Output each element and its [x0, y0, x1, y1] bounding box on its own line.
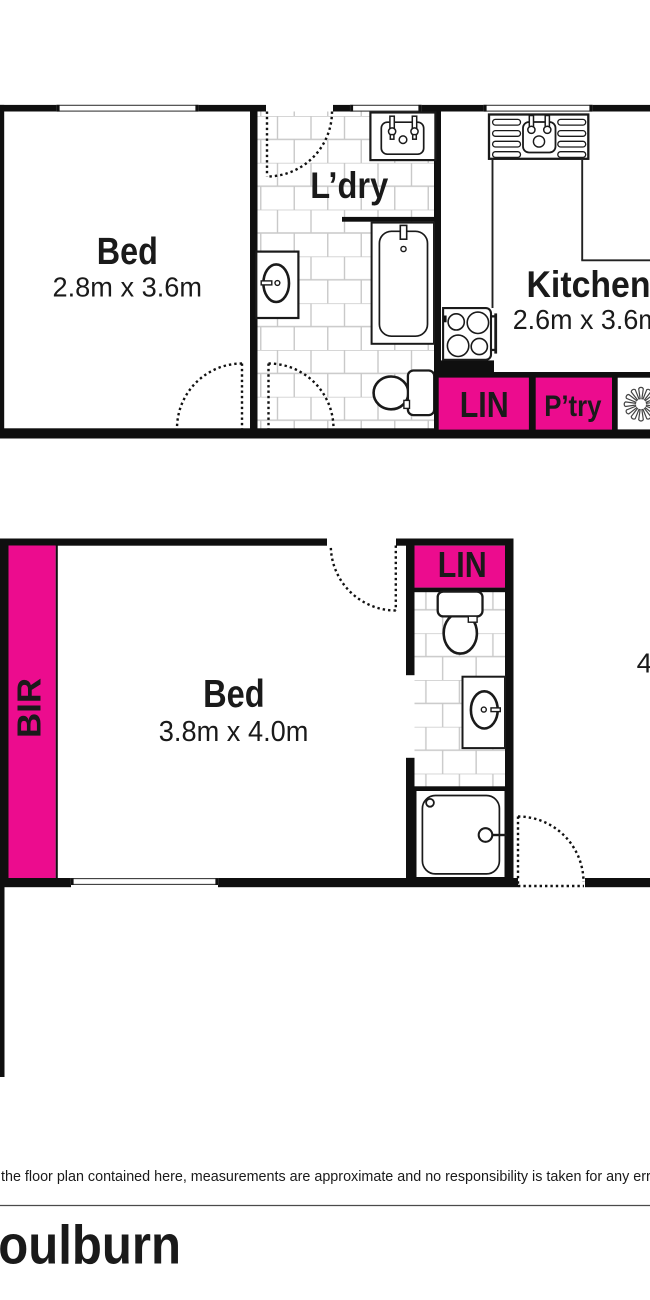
svg-text:L’dry: L’dry	[310, 165, 388, 206]
svg-text:LIN: LIN	[438, 544, 487, 585]
svg-text:Bed: Bed	[97, 231, 158, 273]
svg-text:LIN: LIN	[460, 384, 509, 425]
svg-text:P’try: P’try	[544, 390, 602, 423]
svg-text:3.8m x 4.0m: 3.8m x 4.0m	[159, 716, 309, 748]
svg-text:Kitchen: Kitchen	[527, 264, 650, 305]
svg-text:4.: 4.	[637, 647, 650, 678]
svg-text:2.6m x 3.6m: 2.6m x 3.6m	[513, 304, 650, 335]
svg-text:BIR: BIR	[11, 678, 48, 738]
svg-text:2.8m x 3.6m: 2.8m x 3.6m	[53, 272, 203, 303]
svg-text:Bed: Bed	[203, 673, 265, 716]
svg-text:the floor plan contained here,: the floor plan contained here, measureme…	[1, 1169, 650, 1185]
svg-text:Goulburn: Goulburn	[0, 1214, 181, 1276]
